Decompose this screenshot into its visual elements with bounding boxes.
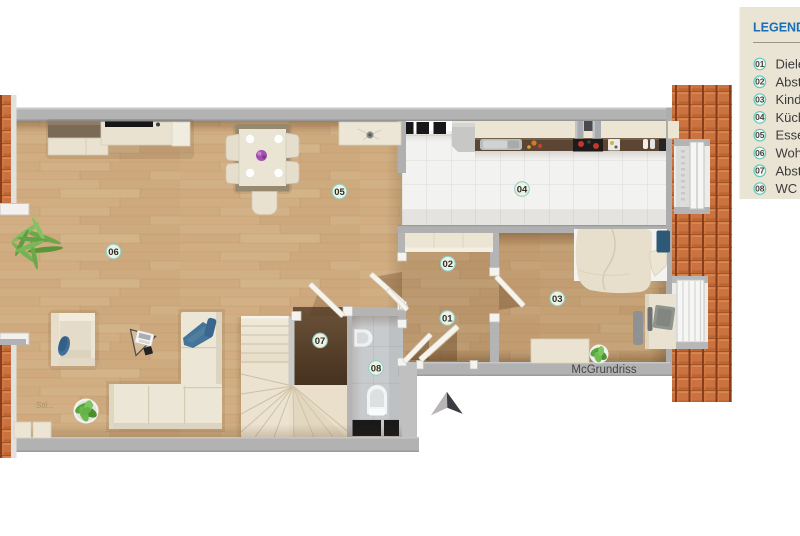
svg-text:Diele: Diele bbox=[776, 57, 800, 72]
svg-text:Abstellraum: Abstellraum bbox=[776, 74, 800, 89]
svg-text:07: 07 bbox=[755, 166, 765, 176]
svg-text:06: 06 bbox=[108, 247, 119, 258]
svg-text:McGrundriss: McGrundriss bbox=[571, 364, 636, 376]
svg-text:05: 05 bbox=[334, 187, 345, 198]
svg-text:03: 03 bbox=[755, 94, 765, 104]
svg-text:Wohnen: Wohnen bbox=[776, 146, 800, 161]
svg-text:Stil...: Stil... bbox=[36, 401, 54, 410]
svg-text:08: 08 bbox=[755, 183, 765, 193]
svg-text:Abstellraum: Abstellraum bbox=[776, 163, 800, 178]
svg-text:07: 07 bbox=[315, 336, 326, 347]
svg-text:02: 02 bbox=[755, 77, 765, 87]
svg-text:08: 08 bbox=[371, 363, 382, 374]
svg-text:04: 04 bbox=[517, 184, 528, 195]
svg-text:Küche: Küche bbox=[776, 110, 800, 125]
svg-text:05: 05 bbox=[755, 130, 765, 140]
svg-text:LEGENDE: LEGENDE bbox=[753, 21, 800, 35]
svg-text:01: 01 bbox=[442, 313, 453, 324]
svg-text:06: 06 bbox=[755, 148, 765, 158]
svg-text:03: 03 bbox=[552, 294, 563, 305]
svg-text:Essen: Essen bbox=[776, 128, 800, 143]
svg-text:01: 01 bbox=[755, 59, 765, 69]
svg-text:Kinderzimmer: Kinderzimmer bbox=[776, 92, 800, 107]
svg-text:02: 02 bbox=[443, 259, 454, 270]
svg-text:WC: WC bbox=[776, 181, 798, 196]
svg-text:04: 04 bbox=[755, 112, 765, 122]
